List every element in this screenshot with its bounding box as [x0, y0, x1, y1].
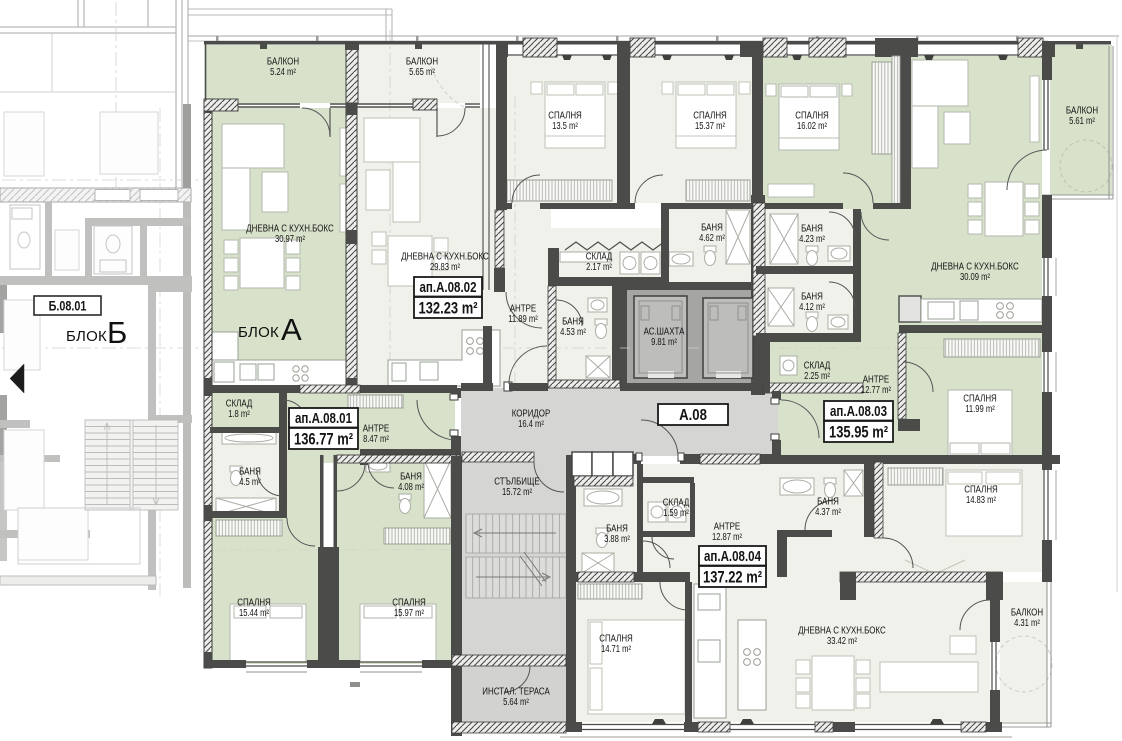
- svg-text:БАНЯ: БАНЯ: [562, 316, 584, 327]
- svg-text:12.87 m²: 12.87 m²: [712, 531, 742, 542]
- svg-text:БАНЯ: БАНЯ: [400, 471, 422, 482]
- svg-text:ДНЕВНА С КУХН.БОКС: ДНЕВНА С КУХН.БОКС: [246, 223, 334, 234]
- svg-text:А: А: [281, 312, 302, 347]
- svg-text:ап.А.08.01: ап.А.08.01: [295, 409, 352, 426]
- svg-text:СКЛАД: СКЛАД: [804, 360, 831, 371]
- svg-text:СКЛАД: СКЛАД: [663, 497, 690, 508]
- svg-text:БАНЯ: БАНЯ: [801, 223, 823, 234]
- svg-text:14.83 m²: 14.83 m²: [966, 494, 996, 505]
- svg-text:2.25 m²: 2.25 m²: [804, 370, 830, 381]
- svg-text:8.47 m²: 8.47 m²: [363, 433, 389, 444]
- svg-text:13.5 m²: 13.5 m²: [552, 120, 578, 131]
- svg-text:12.77 m²: 12.77 m²: [861, 384, 891, 395]
- svg-text:16.4 m²: 16.4 m²: [518, 418, 544, 429]
- svg-text:16.02 m²: 16.02 m²: [797, 120, 827, 131]
- svg-text:135.95 m²: 135.95 m²: [829, 424, 888, 442]
- svg-text:29.83 m²: 29.83 m²: [430, 261, 460, 272]
- svg-text:СПАЛНЯ: СПАЛНЯ: [795, 110, 829, 121]
- svg-text:А.08: А.08: [679, 407, 707, 424]
- svg-text:5.61 m²: 5.61 m²: [1069, 115, 1095, 126]
- svg-text:15.72 m²: 15.72 m²: [502, 486, 532, 497]
- svg-text:АНТРЕ: АНТРЕ: [863, 374, 889, 385]
- svg-text:2.17 m²: 2.17 m²: [586, 261, 612, 272]
- svg-text:ап.А.08.02: ап.А.08.02: [419, 278, 476, 295]
- svg-text:БАНЯ: БАНЯ: [701, 222, 723, 233]
- svg-text:136.77 m²: 136.77 m²: [294, 431, 353, 449]
- svg-text:132.23 m²: 132.23 m²: [418, 300, 477, 318]
- svg-text:АС.ШАХТА: АС.ШАХТА: [644, 326, 686, 337]
- svg-text:11.99 m²: 11.99 m²: [965, 403, 995, 414]
- svg-text:15.97 m²: 15.97 m²: [394, 607, 424, 618]
- svg-text:БАЛКОН: БАЛКОН: [1011, 607, 1043, 618]
- svg-text:4.31 m²: 4.31 m²: [1014, 617, 1040, 628]
- svg-text:14.71 m²: 14.71 m²: [601, 643, 631, 654]
- svg-text:1.8 m²: 1.8 m²: [228, 408, 250, 419]
- svg-text:БЛОК: БЛОК: [238, 324, 279, 341]
- svg-text:Б: Б: [107, 315, 127, 350]
- svg-text:3.88 m²: 3.88 m²: [604, 533, 630, 544]
- svg-text:СПАЛНЯ: СПАЛНЯ: [963, 393, 997, 404]
- svg-text:СПАЛНЯ: СПАЛНЯ: [599, 633, 633, 644]
- svg-text:СПАЛНЯ: СПАЛНЯ: [964, 484, 998, 495]
- svg-text:ДНЕВНА С КУХН.БОКС: ДНЕВНА С КУХН.БОКС: [931, 261, 1019, 272]
- svg-text:БАНЯ: БАНЯ: [606, 523, 628, 534]
- svg-text:БАЛКОН: БАЛКОН: [406, 56, 438, 67]
- svg-text:11.89 m²: 11.89 m²: [508, 313, 538, 324]
- svg-text:БАЛКОН: БАЛКОН: [267, 56, 299, 67]
- svg-text:ДНЕВНА С КУХН.БОКС: ДНЕВНА С КУХН.БОКС: [798, 625, 886, 636]
- svg-text:137.22 m²: 137.22 m²: [703, 569, 762, 587]
- svg-text:4.37 m²: 4.37 m²: [815, 506, 841, 517]
- svg-text:АНТРЕ: АНТРЕ: [714, 521, 740, 532]
- svg-text:5.64 m²: 5.64 m²: [503, 696, 529, 707]
- svg-text:5.24 m²: 5.24 m²: [270, 66, 296, 77]
- svg-text:СПАЛНЯ: СПАЛНЯ: [548, 110, 582, 121]
- svg-text:4.53 m²: 4.53 m²: [560, 326, 586, 337]
- svg-text:4.12 m²: 4.12 m²: [799, 301, 825, 312]
- svg-text:БАНЯ: БАНЯ: [801, 291, 823, 302]
- svg-text:4.5 m²: 4.5 m²: [239, 476, 261, 487]
- svg-text:15.44 m²: 15.44 m²: [239, 607, 269, 618]
- svg-text:ИНСТАЛ. ТЕРАСА: ИНСТАЛ. ТЕРАСА: [482, 686, 550, 697]
- svg-text:ап.А.08.03: ап.А.08.03: [830, 402, 887, 419]
- svg-text:1.59 m²: 1.59 m²: [663, 507, 689, 518]
- svg-text:СКЛАД: СКЛАД: [226, 398, 253, 409]
- svg-text:СПАЛНЯ: СПАЛНЯ: [237, 597, 271, 608]
- svg-text:30.97 m²: 30.97 m²: [275, 233, 305, 244]
- svg-text:СПАЛНЯ: СПАЛНЯ: [693, 110, 727, 121]
- svg-text:КОРИДОР: КОРИДОР: [512, 408, 551, 419]
- svg-text:Б.08.01: Б.08.01: [49, 298, 87, 313]
- svg-text:33.42 m²: 33.42 m²: [827, 635, 857, 646]
- svg-text:БАНЯ: БАНЯ: [239, 466, 261, 477]
- svg-text:СТЪЛБИЩЕ: СТЪЛБИЩЕ: [494, 476, 539, 487]
- svg-text:4.08 m²: 4.08 m²: [398, 481, 424, 492]
- svg-text:БАЛКОН: БАЛКОН: [1066, 105, 1098, 116]
- svg-text:ДНЕВНА С КУХН.БОКС: ДНЕВНА С КУХН.БОКС: [401, 251, 489, 262]
- svg-text:АНТРЕ: АНТРЕ: [510, 303, 536, 314]
- svg-text:4.62 m²: 4.62 m²: [699, 232, 725, 243]
- svg-text:9.81 m²: 9.81 m²: [651, 336, 677, 347]
- svg-text:СКЛАД: СКЛАД: [586, 251, 613, 262]
- svg-text:ап.А.08.04: ап.А.08.04: [704, 547, 761, 564]
- svg-text:СПАЛНЯ: СПАЛНЯ: [392, 597, 426, 608]
- svg-text:БЛОК: БЛОК: [66, 328, 107, 345]
- svg-text:БАНЯ: БАНЯ: [817, 496, 839, 507]
- svg-text:5.65 m²: 5.65 m²: [409, 66, 435, 77]
- svg-text:4.23 m²: 4.23 m²: [799, 233, 825, 244]
- svg-text:АНТРЕ: АНТРЕ: [363, 423, 389, 434]
- svg-text:30.09 m²: 30.09 m²: [960, 271, 990, 282]
- svg-text:15.37 m²: 15.37 m²: [695, 120, 725, 131]
